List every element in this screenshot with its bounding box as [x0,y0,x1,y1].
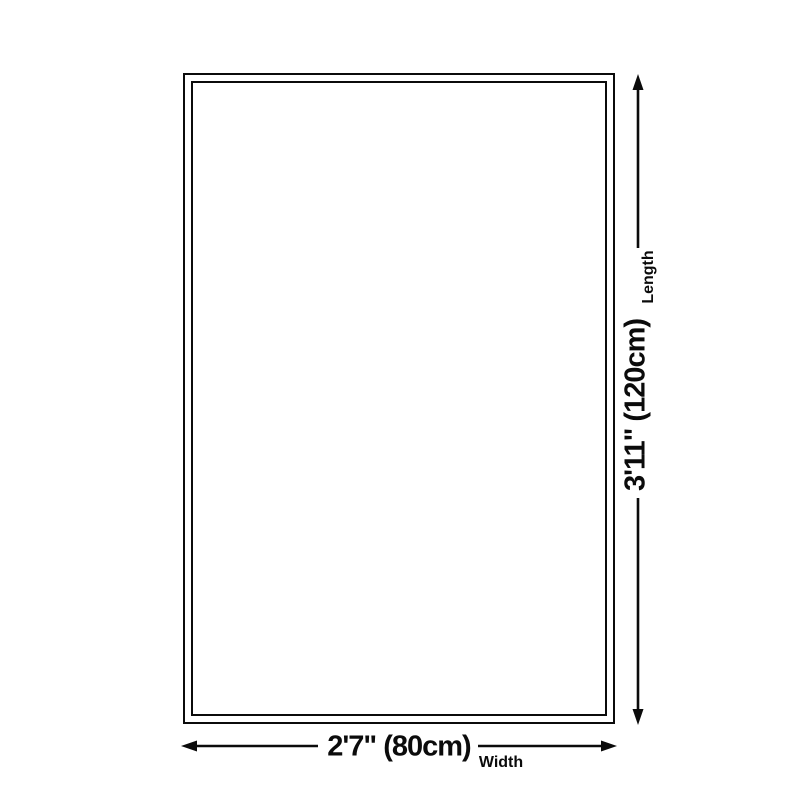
product-outline-inner-border [191,81,607,716]
arrow-left-icon [181,741,197,752]
width-dimension-value: 2'7" (80cm) [321,731,476,764]
product-outline-outer-border [183,73,615,724]
size-diagram: 3'11" (120cm) Length 2'7" (80cm) Width [0,0,800,800]
width-dimension-label: Width [477,754,525,772]
length-dimension-value: 3'11" (120cm) [620,313,653,497]
arrow-down-icon [633,709,644,725]
arrow-up-icon [633,74,644,90]
length-dimension-label: Length [640,248,658,305]
arrow-right-icon [601,741,617,752]
